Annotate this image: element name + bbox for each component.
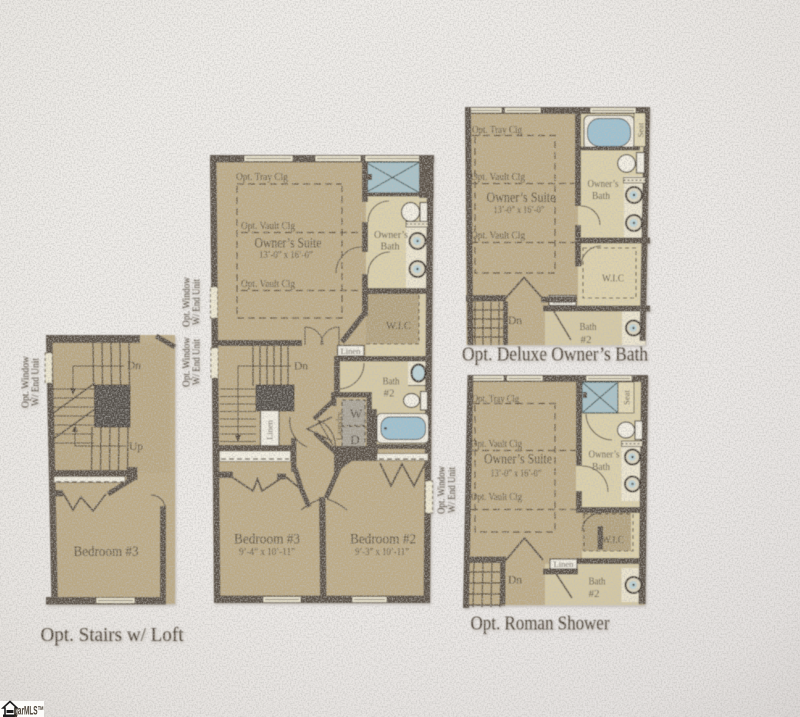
svg-text:garMLS™: garMLS™ — [14, 704, 44, 717]
